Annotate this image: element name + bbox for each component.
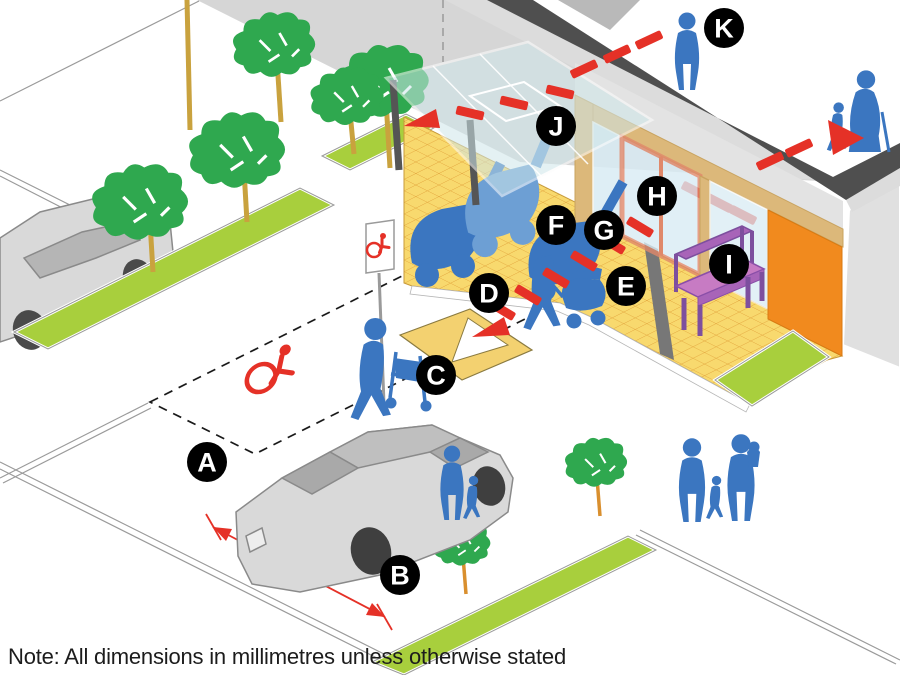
tree-icon (92, 164, 188, 239)
callout-letter: A (197, 448, 217, 478)
callout-letter: E (617, 272, 635, 302)
building-end-wall (843, 184, 900, 368)
tree-icon (189, 112, 285, 187)
callout-letter: D (479, 279, 499, 309)
diagram-canvas: 3600 (0, 0, 900, 675)
note-text: Note: All dimensions in millimetres unle… (8, 644, 566, 669)
callout-letter: H (647, 182, 667, 212)
callout-letter: J (548, 112, 563, 142)
callout-letter: B (390, 561, 410, 591)
callout-e: E (606, 266, 646, 306)
callout-f: F (536, 205, 576, 245)
tree-icon (565, 438, 627, 487)
callout-h: H (637, 176, 677, 216)
tan-column-right (700, 176, 710, 280)
callout-letter: G (593, 216, 614, 246)
tree-icon (311, 68, 384, 125)
callout-c: C (416, 355, 456, 395)
callout-k: K (704, 8, 744, 48)
callout-b: B (380, 555, 420, 595)
callout-letter: K (714, 14, 734, 44)
callout-letter: I (725, 250, 733, 280)
callout-g: G (584, 210, 624, 250)
isometric-diagram: 3600 (0, 0, 900, 675)
road-kerb-line (0, 1, 199, 101)
callout-letter: C (426, 361, 446, 391)
callout-d: D (469, 273, 509, 313)
callout-i: I (709, 244, 749, 284)
callout-a: A (187, 442, 227, 482)
callout-letter: F (548, 211, 565, 241)
callout-j: J (536, 106, 576, 146)
family-group (679, 434, 760, 522)
